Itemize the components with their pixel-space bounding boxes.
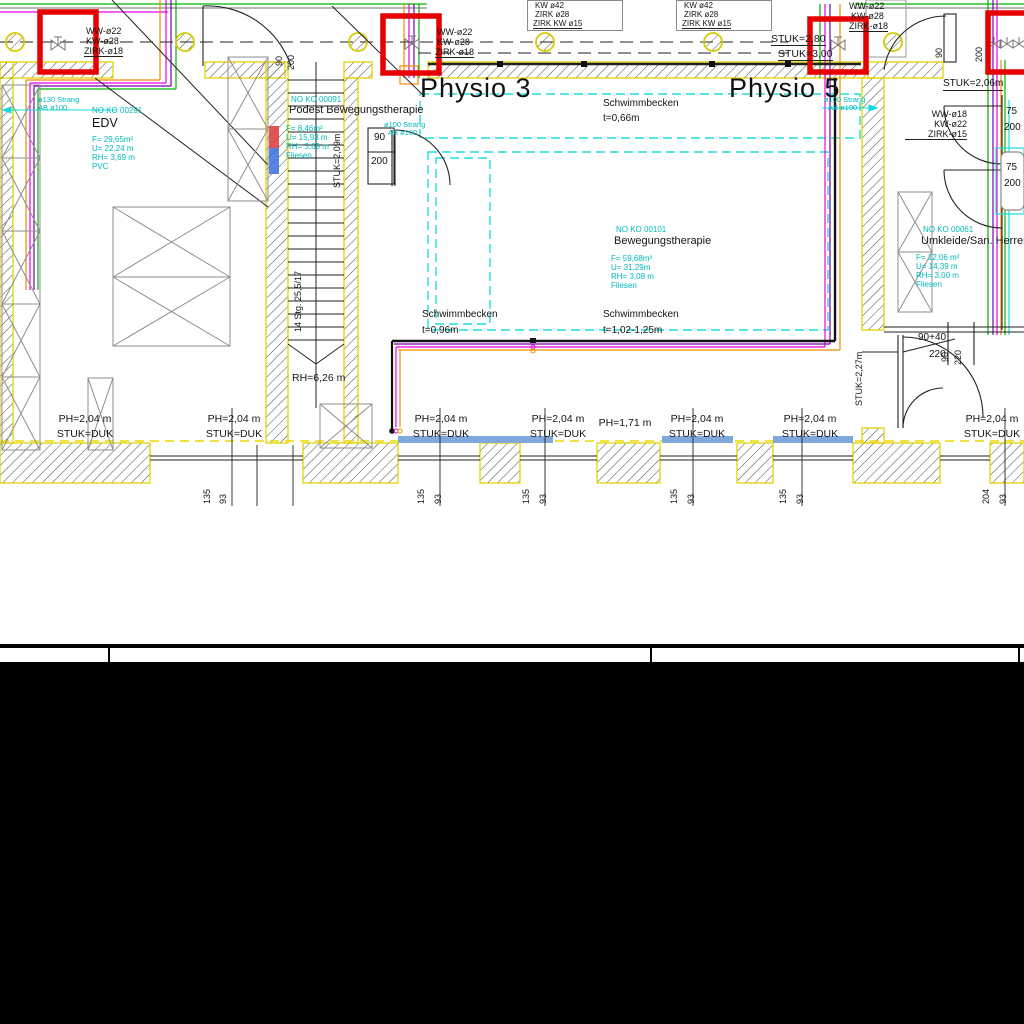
stuk-227-label: STUK=2,27m [854,352,864,406]
titleblock-divider-2 [650,648,652,662]
pool-top-depth: t=0,66m [603,114,639,125]
strang-left-line2: AB ø100 [38,104,67,112]
stair-headroom-label: RH=6,26 m [292,373,345,384]
room-umkleide-no: NO KO 00061 [923,226,973,234]
stuk-duk-2: STUK=DUK [204,429,264,440]
pool-main-name: Schwimmbecken [603,310,679,321]
strang-right-line2: AB ø100 [828,104,857,112]
stuk-duk-7: STUK=DUK [962,429,1022,440]
stuk-duk-3: STUK=DUK [411,429,471,440]
pipe-box2-line3: ZIRK KW ø15 [682,20,731,29]
room-beweg-floor: Fliesen [611,282,637,290]
ph-label-6: PH=2,04 m [778,414,842,425]
dim-93-1: 93 [218,494,228,504]
stuk-duk-5: STUK=DUK [667,429,727,440]
dim-135-2: 135 [416,489,426,504]
room-beweg-name: Bewegungstherapie [614,236,711,248]
dim-135-5: 135 [778,489,788,504]
room-umkleide-name: Umkleide/San. Herren [921,236,1024,248]
wall-marker-red [269,126,279,148]
door-topright-height: 200 [974,47,984,62]
stair-steps-label: 14 Stg. 25,5/17 [293,271,303,332]
dim-135-3: 135 [521,489,531,504]
door-a-width: 75 [1006,107,1017,118]
ph-label-7: PH=2,04 m [960,414,1024,425]
door-left-height: 200 [286,55,296,70]
titleblock-header-row [0,648,1024,662]
ph-label-2: PH=2,04 m [202,414,266,425]
door-topright-width: 90 [934,48,944,58]
door-b-width: 75 [1006,163,1017,174]
dim-93-2: 93 [433,494,443,504]
pipe-box-2: KW ø42 ZIRK ø28 ZIRK KW ø15 [676,0,772,31]
walls [0,62,1024,483]
pool-top-name: Schwimmbecken [603,99,679,110]
stuk-duk-1: STUK=DUK [55,429,115,440]
ph-label-4: PH=2,04 m [526,414,590,425]
ph-label-3: PH=2,04 m [409,414,473,425]
riser-left-line3: ZIRK-ø18 [84,47,123,57]
stuk-206-label: STUK=2,06m [943,79,1003,91]
stuk-280-label: STUK=2,80 [771,34,826,46]
door-b-height: 200 [1004,179,1021,190]
dim-door-90: 90 [940,352,950,362]
riser-mid-line3: ZIRK-ø18 [435,48,474,58]
riser-right-line3: ZIRK-ø18 [849,22,888,32]
door-left-width: 90 [274,56,284,66]
stuk-300-label: STUK=3,00 [778,49,833,61]
strang-mid-line2: AB ø100 [388,129,417,137]
riser-far-right-line3: ZIRK-ø15 [905,130,967,140]
dim-93-6: 93 [998,494,1008,504]
room-edv-name: EDV [92,117,118,130]
room-edv-floor: PVC [92,163,108,171]
room-beweg-no: NO KO 00101 [616,226,666,234]
titleblock-body [0,662,1024,1024]
dim-135-1: 135 [202,489,212,504]
pool-main-depth: t=1,02-1,25m [603,326,662,337]
dim-door-220: 220 [953,350,963,365]
pipe-box1-line3: ZIRK KW ø15 [533,20,582,29]
door-podest-height: 200 [371,157,388,168]
room-edv-no: NO KO 00291 [92,107,142,115]
stuk-duk-6: STUK=DUK [780,429,840,440]
pool-left-name: Schwimmbecken [422,310,498,321]
door-a-height: 200 [1004,123,1021,134]
floor-plan-canvas: WW-ø22 KW-ø28 ZIRK-ø18 WW-ø22 KW-ø28 ZIR… [0,0,1024,1024]
stuk-209-label: STUK=2,09m [332,134,342,188]
room-podest-name: Podest Bewegungstherapie [289,105,424,117]
ph-label-1: PH=2,04 m [53,414,117,425]
dim-93-3: 93 [538,494,548,504]
titleblock-divider-3 [1018,648,1020,662]
ph-label-5: PH=2,04 m [665,414,729,425]
dim-135-4: 135 [669,489,679,504]
dim-93-4: 93 [686,494,696,504]
door-double-width: 90+40 [918,333,946,344]
wall-marker-blue [269,148,279,174]
pool-outlines [420,94,860,330]
titleblock-divider-1 [108,648,110,662]
stuk-duk-4: STUK=DUK [528,429,588,440]
door-podest-width: 90 [374,133,385,144]
ph-label-171: PH=1,71 m [593,418,657,429]
room-umkleide-floor: Fliesen [916,281,942,289]
room-title-physio3: Physio 3 [420,74,532,102]
duct-lines [0,42,861,67]
pipe-box-1: KW ø42 ZIRK ø28 ZIRK KW ø15 [527,0,623,31]
dim-204: 204 [981,489,991,504]
room-podest-floor: Fliesen [286,152,312,160]
dim-93-5: 93 [795,494,805,504]
pool-left-depth: t=0,96m [422,326,458,337]
